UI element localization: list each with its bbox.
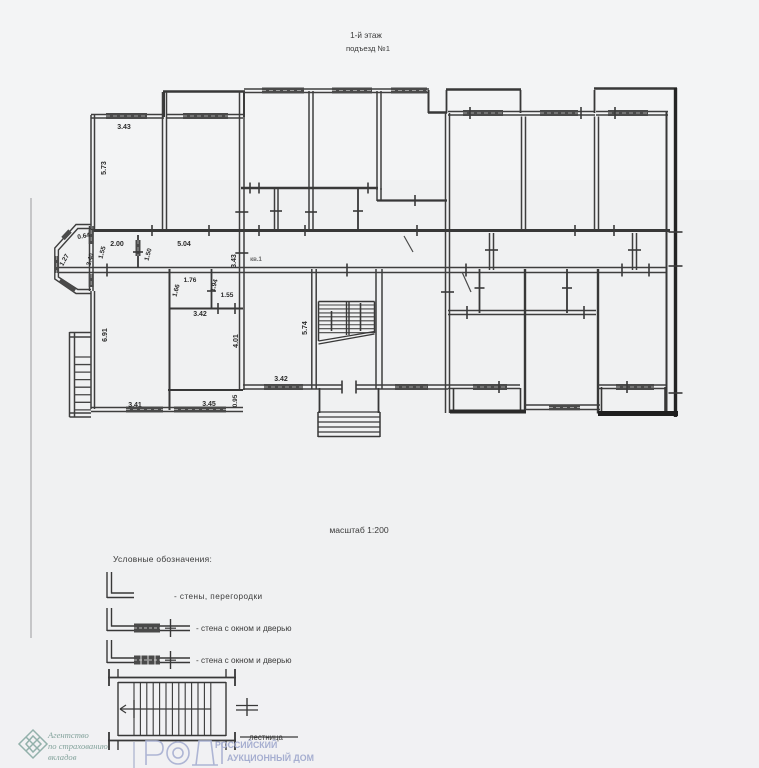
svg-text:подъезд №1: подъезд №1 — [346, 44, 390, 53]
svg-text:Агентство: Агентство — [47, 730, 90, 740]
svg-text:3.43: 3.43 — [231, 254, 238, 268]
svg-text:3.42: 3.42 — [193, 311, 207, 318]
svg-text:3.43: 3.43 — [117, 124, 131, 131]
svg-text:5.04: 5.04 — [177, 241, 191, 248]
svg-text:АУКЦИОННЫЙ ДОМ: АУКЦИОННЫЙ ДОМ — [227, 752, 314, 763]
svg-text:1.76: 1.76 — [184, 277, 197, 284]
svg-text:5.74: 5.74 — [302, 321, 309, 335]
svg-text:1.55: 1.55 — [221, 292, 234, 299]
svg-text:6.91: 6.91 — [102, 328, 109, 342]
svg-text:3.45: 3.45 — [202, 401, 216, 408]
svg-text:3.41: 3.41 — [128, 402, 142, 409]
svg-text:кв.1: кв.1 — [250, 257, 262, 263]
svg-text:2.00: 2.00 — [110, 241, 124, 248]
svg-text:вкладов: вкладов — [48, 752, 77, 762]
svg-text:- стены, перегородки: - стены, перегородки — [174, 592, 263, 601]
svg-text:РОССИЙСКИЙ: РОССИЙСКИЙ — [215, 739, 277, 750]
svg-text:4.01: 4.01 — [233, 334, 240, 348]
svg-text:3.42: 3.42 — [274, 376, 288, 383]
svg-text:- стена с окном и дверью: - стена с окном и дверью — [196, 624, 292, 633]
svg-text:0.95: 0.95 — [232, 394, 239, 407]
svg-text:Условные обозначения:: Условные обозначения: — [113, 554, 212, 564]
svg-text:5.73: 5.73 — [101, 161, 108, 175]
svg-text:масштаб 1:200: масштаб 1:200 — [329, 525, 389, 535]
svg-text:- стена с окном и дверью: - стена с окном и дверью — [196, 656, 292, 665]
svg-text:1-й этаж: 1-й этаж — [350, 31, 382, 40]
svg-text:по страхованию: по страхованию — [48, 741, 108, 751]
